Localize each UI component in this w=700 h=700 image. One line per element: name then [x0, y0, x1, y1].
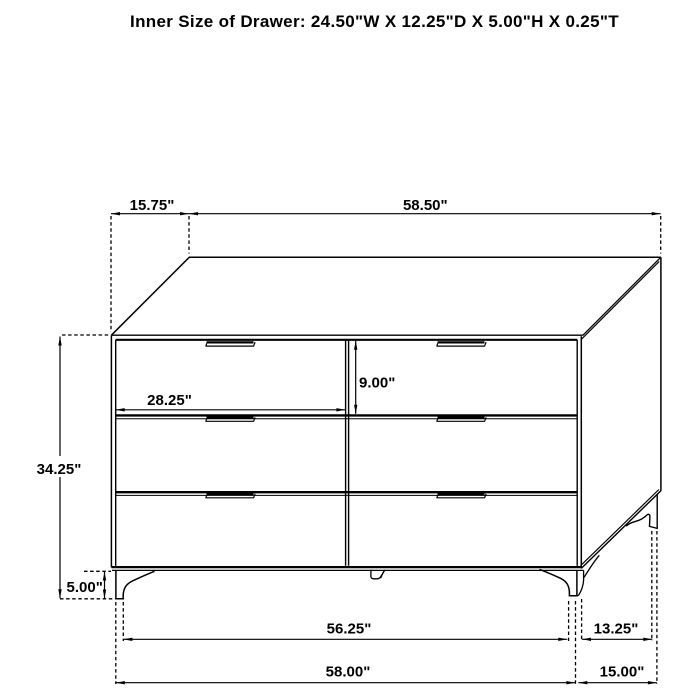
- svg-text:58.00": 58.00": [326, 664, 371, 681]
- svg-text:Inner Size of Drawer: 24.50"W: Inner Size of Drawer: 24.50"W X 12.25"D …: [130, 12, 619, 31]
- svg-text:13.25": 13.25": [594, 621, 639, 638]
- svg-text:56.25": 56.25": [327, 621, 372, 638]
- svg-text:15.75": 15.75": [130, 197, 175, 214]
- svg-text:34.25": 34.25": [37, 461, 82, 478]
- svg-text:15.00": 15.00": [600, 664, 645, 681]
- svg-text:9.00": 9.00": [359, 375, 395, 392]
- svg-text:28.25": 28.25": [147, 392, 192, 409]
- svg-text:5.00": 5.00": [67, 579, 103, 596]
- svg-text:58.50": 58.50": [403, 197, 448, 214]
